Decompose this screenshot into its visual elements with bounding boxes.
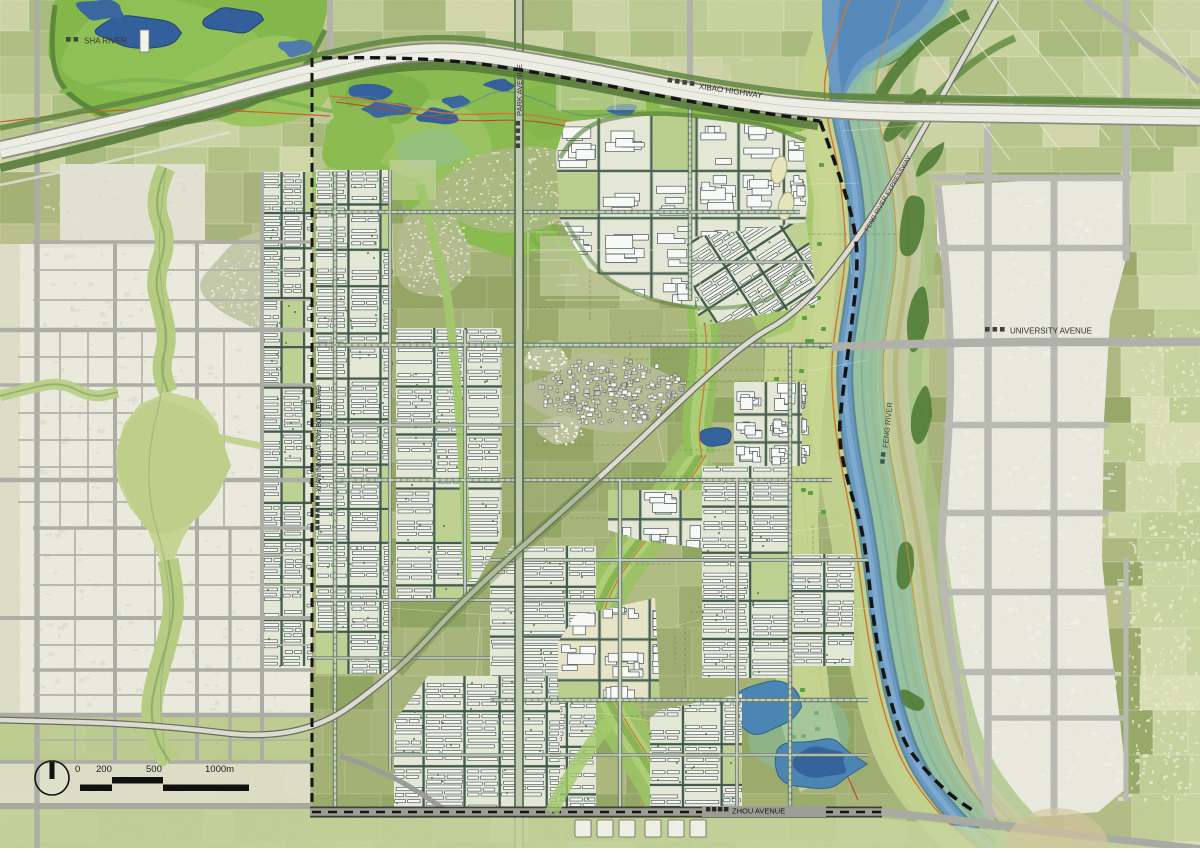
svg-text:ZHOU AVENUE: ZHOU AVENUE (732, 807, 785, 816)
svg-text:0: 0 (75, 764, 80, 775)
svg-text:UNIVERSITY AVENUE: UNIVERSITY AVENUE (1010, 327, 1092, 336)
svg-text:XI’AN INNOVATION BOULEVARD: XI’AN INNOVATION BOULEVARD (316, 385, 323, 492)
svg-text:PARK AVENUE: PARK AVENUE (515, 64, 524, 116)
svg-text:1000m: 1000m (205, 764, 234, 775)
svg-text:SHA RIVER: SHA RIVER (84, 37, 127, 46)
svg-text:500: 500 (146, 764, 162, 775)
svg-text:200: 200 (96, 764, 112, 775)
